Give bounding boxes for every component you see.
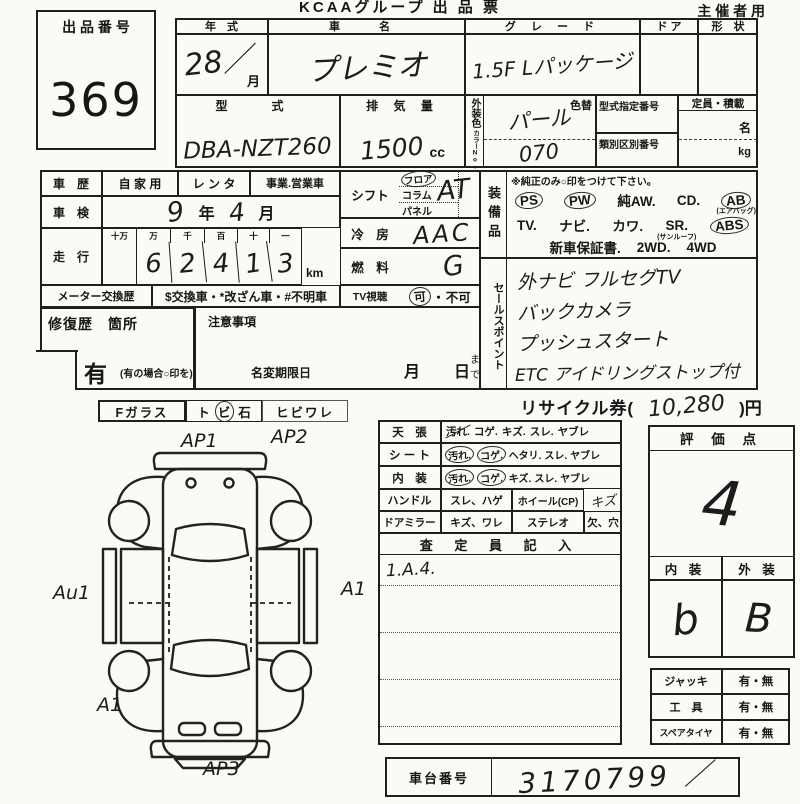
- displacement-value: 1500: [359, 131, 425, 165]
- color-no-value: 070: [493, 136, 585, 169]
- fglass-crack-cell: ヒビワレ: [262, 400, 348, 422]
- year-header: 年 式: [175, 18, 268, 34]
- equipment-line1: PS PW 純AW. CD. AB(エアバッグ): [509, 187, 757, 213]
- capacity-label: 定員・積載: [679, 96, 757, 111]
- fuel-label: 燃 料: [341, 249, 399, 284]
- door-header: ド ア: [640, 18, 698, 34]
- spare-tire-label: スペアタイヤ: [650, 720, 722, 745]
- deadline-month: 月: [404, 358, 420, 382]
- cond-token: コゲ.: [476, 468, 506, 487]
- fuel-cell: 燃 料 G: [340, 248, 480, 285]
- stereo-label: ステレオ: [512, 511, 584, 533]
- grade-value: 1.5F Lパッケージ: [471, 44, 633, 84]
- mileage-digit: 2: [169, 241, 207, 285]
- fglass-label: Fガラス: [98, 400, 186, 422]
- cond-token: 汚れ.: [446, 424, 470, 439]
- ceiling-label: 天 張: [378, 420, 441, 443]
- deadline-label: 名変期限日: [251, 364, 311, 381]
- digit-header: 十万: [103, 229, 137, 243]
- year-value: 28／: [182, 34, 254, 85]
- mileage-digit: 1: [235, 241, 272, 286]
- car-body: [163, 469, 257, 757]
- rear-window: [171, 640, 249, 676]
- recycle-line: リサイクル券( 10,280 )円: [492, 392, 790, 420]
- shift-floor-circled: フロア: [400, 170, 436, 189]
- tools-value: 有・無: [722, 694, 790, 720]
- grade-cell: 1.5F Lパッケージ: [465, 34, 640, 95]
- door-cell: [640, 34, 698, 95]
- model-cell: 型 式 DBA-NZT260: [175, 95, 340, 168]
- equip-pw: PW: [564, 190, 597, 210]
- car-name-cell: プレミオ: [268, 34, 465, 95]
- equip-sr: SR.: [666, 218, 689, 233]
- right-door-panel: [257, 549, 299, 643]
- lot-number: 369: [38, 73, 154, 127]
- right-rocker-rail: [304, 549, 317, 643]
- wheel-label: ホイール(CP): [512, 489, 584, 511]
- mirror-label: ドアミラー: [378, 511, 441, 533]
- tv-ng: 不可: [446, 287, 471, 306]
- shaken-month: 4: [227, 197, 246, 228]
- handle-items: スレ、ハゲ: [441, 489, 512, 511]
- mileage-digit: 6: [136, 242, 173, 285]
- interior-label: 内 装: [378, 466, 441, 489]
- exterior-color-label: 外装色: [467, 98, 482, 128]
- rating-header: 評 価 点: [648, 425, 795, 451]
- cond-token: 汚れ.: [444, 468, 474, 487]
- cond-token: キズ.: [509, 470, 532, 485]
- shaken-year: 9: [165, 195, 186, 228]
- interior-items: 汚れ. コゲ. キズ. スレ. ヤブレ: [441, 466, 622, 489]
- deadline-day: 日: [454, 358, 470, 382]
- model-label: 型 式: [176, 96, 339, 114]
- wheel: [271, 501, 311, 541]
- tail-light: [179, 723, 205, 735]
- rating-interior-grade: b: [669, 593, 701, 645]
- equip-aw: 純AW.: [617, 190, 655, 210]
- chassis-value: 3170799 ／: [491, 752, 743, 801]
- tail-light: [215, 723, 241, 735]
- sales-line: バックカメラ: [517, 295, 632, 326]
- cond-token: ヘタリ.: [509, 447, 542, 462]
- damage-mark-ap1: AP1: [179, 430, 218, 452]
- grade-header: グ レ ー ド: [465, 18, 640, 34]
- capacity-persons: 名: [679, 111, 757, 136]
- fuel-value: G: [441, 250, 466, 284]
- shaken-year-unit: 年: [199, 200, 215, 224]
- shape-header: 形 状: [698, 18, 758, 34]
- sales-line: 外ナビ フルセグTV: [517, 262, 681, 295]
- rating-score: 4: [698, 465, 745, 542]
- history-rental: レ ン タ: [178, 170, 250, 196]
- tools-label: 工 具: [650, 694, 722, 720]
- left-rocker-rail: [103, 549, 116, 643]
- type-designation-label: 型式指定番号: [597, 96, 677, 113]
- equip-ps: PS: [514, 190, 543, 209]
- cond-token: コゲ.: [474, 424, 498, 439]
- cond-token: ヤブレ: [558, 424, 590, 439]
- equipment-label: 装備品: [481, 171, 507, 257]
- wheel: [109, 651, 149, 691]
- rating-interior-value: b: [648, 580, 722, 658]
- repair-yes-note: (有の場合○印を): [120, 365, 193, 380]
- sales-points-block: セールスポイント 外ナビ フルセグTV バックカメラ プッシュスタート ETC …: [480, 258, 758, 390]
- cond-token: コゲ.: [476, 445, 506, 464]
- model-value: DBA-NZT260: [176, 133, 340, 165]
- mileage-unit: km: [306, 266, 323, 280]
- damage-mark-ap3: AP3: [201, 758, 240, 780]
- stereo-items: 欠、穴: [584, 511, 622, 533]
- ac-label: 冷 房: [341, 219, 399, 247]
- rating-score-area: 4: [648, 451, 795, 556]
- ac-cell: 冷 房 AAC: [340, 218, 480, 248]
- left-door-panel: [121, 549, 163, 643]
- mirror-items: キズ、ワレ: [441, 511, 512, 533]
- cond-token: ヤブレ: [560, 470, 590, 485]
- equipment-line3: 新車保証書. 2WD. 4WD: [509, 237, 757, 257]
- month-suffix: 月: [247, 71, 260, 90]
- tv-ok: 可: [408, 286, 432, 307]
- mileage-digit: [103, 243, 137, 284]
- shaken-cell: 9 年 4 月: [102, 196, 340, 228]
- equip-warranty: 新車保証書.: [549, 237, 620, 257]
- repair-label: 修復歴 箇所: [42, 309, 193, 334]
- sales-line: プッシュスタート: [517, 324, 670, 356]
- meter-history-label: メーター交換歴: [40, 285, 152, 307]
- cond-token: キズ.: [502, 424, 526, 439]
- name-header: 車 名: [268, 18, 465, 34]
- recycle-value: 10,280: [633, 389, 740, 423]
- type-designation-cell: 型式指定番号: [596, 95, 678, 133]
- rating-exterior-grade: B: [744, 595, 774, 642]
- mileage-digit: 4: [203, 242, 239, 286]
- seat-items: 汚れ. コゲ. ヘタリ. スレ. ヤブレ: [441, 443, 622, 466]
- brand-title: KCAAグループ 出 品 票: [235, 0, 565, 17]
- color-value: パール: [493, 100, 585, 138]
- inspector-note: 1.A.4.: [386, 559, 437, 582]
- equip-navi: ナビ.: [559, 215, 590, 235]
- equip-abs: ABS: [710, 215, 750, 235]
- car-damage-diagram: AP1 AP2 Au1 A1 A1 AP3: [45, 425, 375, 800]
- capacity-cell: 定員・積載 名 kg: [678, 95, 758, 168]
- rating-exterior-value: B: [722, 580, 795, 658]
- recycle-suffix: )円: [739, 394, 762, 419]
- shape-cell: [698, 34, 758, 95]
- shaken-month-unit: 月: [259, 200, 275, 224]
- equip-cd: CD.: [677, 193, 700, 208]
- damage-mark-au1: Au1: [51, 582, 90, 604]
- history-business: 事業.営業車: [250, 170, 340, 196]
- equipment-block: 装備品 ※純正のみ○印をつけて下さい。 PS PW 純AW. CD. AB(エア…: [480, 170, 758, 258]
- tv-dot: ・: [432, 287, 445, 306]
- displacement-label: 排 気 量: [341, 96, 464, 114]
- shift-label: シフト: [341, 171, 399, 217]
- damage-mark-ap2: AP2: [269, 426, 308, 448]
- mileage-grid: 十万 万 千 百 十 一 6 2 4 1 3: [102, 228, 302, 285]
- repair-yes: 有: [84, 355, 107, 389]
- shaken-label: 車 検: [40, 196, 102, 228]
- mileage-digit: 3: [268, 242, 302, 286]
- equip-leather: カワ.: [612, 215, 643, 235]
- equipment-line2: TV. ナビ. カワ. SR.(サンルーフ) ABS: [509, 213, 757, 237]
- history-label: 車 歴: [40, 170, 102, 196]
- sales-points-label: セールスポイント: [481, 259, 507, 389]
- class-number-label: 類別区別番号: [597, 134, 677, 151]
- tv-cell: TV視聴 可 ・ 不可: [340, 285, 480, 307]
- inspector-header: 査 定 員 記 入: [378, 533, 622, 555]
- mileage-label: 走 行: [40, 228, 102, 285]
- color-no-label: カラーNo.: [470, 130, 480, 171]
- chip-c: 石: [238, 402, 251, 421]
- cowl-detail: [225, 479, 234, 488]
- rating-exterior-header: 外 装: [722, 556, 795, 580]
- color-cell: 外装色 カラーNo. 色替 パール 070: [465, 95, 596, 168]
- meter-history-text: $交換車・*改ざん車・#不明車: [152, 285, 340, 307]
- rating-interior-header: 内 装: [648, 556, 722, 580]
- chip-a: ト: [197, 402, 210, 421]
- shift-value: AT: [435, 173, 471, 207]
- caution-label: 注意事項: [196, 308, 479, 330]
- recycle-label: リサイクル券(: [520, 394, 634, 419]
- cond-token: スレ.: [534, 470, 557, 485]
- wheel: [109, 501, 149, 541]
- caution-box: 注意事項 名変期限日 月 日 まで: [195, 307, 480, 390]
- ceiling-items: 汚れ. コゲ. キズ. スレ. ヤブレ: [441, 420, 622, 443]
- sales-line: ETC アイドリングストップ付: [515, 357, 740, 386]
- tv-label: TV視聴: [341, 286, 399, 306]
- wheel: [271, 651, 311, 691]
- displacement-cell: 排 気 量 1500 cc: [340, 95, 465, 168]
- damage-mark-a1-left: A1: [95, 694, 122, 716]
- equip-tv: TV.: [517, 218, 537, 233]
- spare-tire-value: 有・無: [722, 720, 790, 745]
- seat-label: シ ー ト: [378, 443, 441, 466]
- jack-value: 有・無: [722, 668, 790, 694]
- history-private: 自 家 用: [102, 170, 178, 196]
- deadline-made: まで: [470, 351, 480, 381]
- class-number-cell: 類別区別番号: [596, 133, 678, 168]
- equip-2wd: 2WD.: [637, 240, 671, 255]
- windshield: [172, 524, 248, 561]
- year-cell: 28／ 月: [175, 34, 268, 95]
- jack-label: ジャッキ: [650, 668, 722, 694]
- shift-cell: シフト フロア コラム パネル AT: [340, 170, 480, 218]
- cowl-detail: [187, 479, 196, 488]
- chassis-box: 車台番号 3170799 ／: [385, 757, 740, 797]
- equip-4wd: 4WD: [687, 240, 717, 255]
- digit-header: 万: [137, 229, 171, 243]
- cond-token: ヤブレ: [570, 447, 600, 462]
- cond-token: 汚れ.: [444, 445, 474, 464]
- cond-token: スレ.: [544, 447, 567, 462]
- fglass-chip-cell: ト ビ 石: [186, 400, 262, 422]
- cond-token: スレ.: [530, 424, 554, 439]
- chip-b-circled: ビ: [214, 400, 234, 422]
- car-name-value: プレミオ: [305, 39, 427, 89]
- chassis-label: 車台番号: [387, 759, 492, 795]
- lot-box: 出 品 番 号 369: [36, 10, 156, 150]
- handle-label: ハンドル: [378, 489, 441, 511]
- front-bumper: [154, 453, 266, 469]
- damage-mark-a1-right: A1: [339, 578, 366, 600]
- ac-value: AAC: [412, 218, 472, 250]
- equipment-note: ※純正のみ○印をつけて下さい。: [511, 173, 657, 188]
- lot-label: 出 品 番 号: [38, 12, 154, 37]
- displacement-unit: cc: [430, 144, 446, 160]
